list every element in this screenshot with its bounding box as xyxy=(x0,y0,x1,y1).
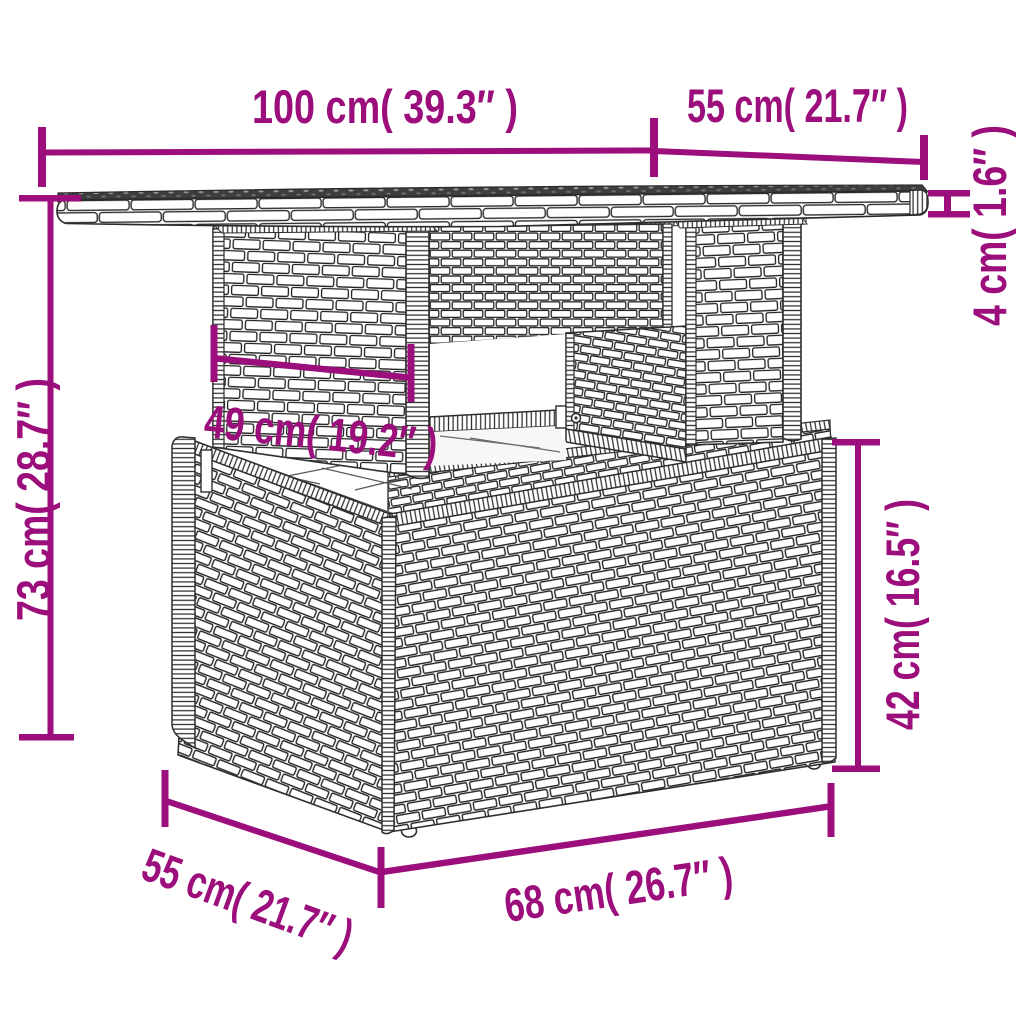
svg-text:4 cm( 1.6″ ): 4 cm( 1.6″ ) xyxy=(963,125,1016,326)
svg-text:73 cm( 28.7″ ): 73 cm( 28.7″ ) xyxy=(7,378,60,621)
svg-text:100 cm( 39.3″ ): 100 cm( 39.3″ ) xyxy=(252,80,518,133)
svg-text:55 cm( 21.7″ ): 55 cm( 21.7″ ) xyxy=(687,79,908,132)
svg-text:42 cm( 16.5″ ): 42 cm( 16.5″ ) xyxy=(876,499,929,730)
